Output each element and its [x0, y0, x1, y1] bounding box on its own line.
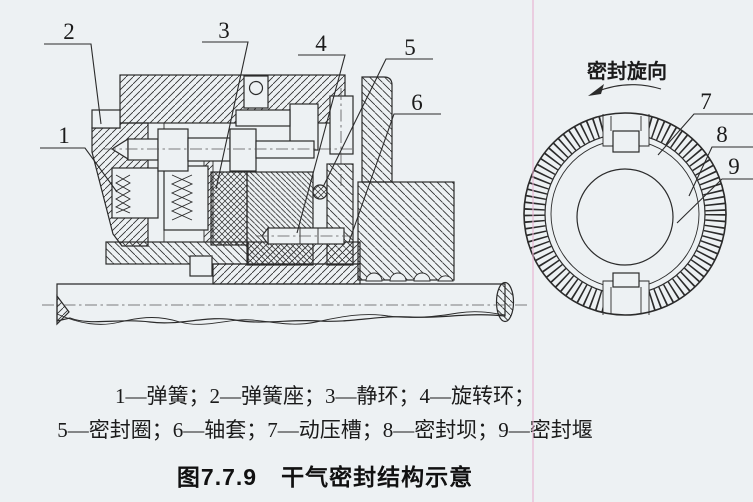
seal-face-view: 密封旋向 7 8 9	[524, 59, 753, 316]
callout-number-1: 1	[58, 123, 70, 148]
callout-number-5: 5	[404, 35, 416, 60]
callout-number-2: 2	[63, 19, 75, 44]
callout-number-9: 9	[728, 154, 740, 179]
static-ring	[211, 172, 247, 245]
shaft-body	[57, 284, 505, 323]
pin-rod-1	[128, 139, 158, 160]
figure-caption: 图7.7.9 干气密封结构示意	[0, 458, 650, 492]
sleeve-right-block	[358, 182, 454, 280]
pin-rod-3	[256, 141, 314, 158]
rotation-direction-label: 密封旋向	[587, 59, 667, 83]
callout-number-3: 3	[218, 18, 230, 43]
scan-artifact-line	[532, 0, 534, 502]
spring-pocket-mid	[164, 166, 208, 230]
anti-rotation-slot	[330, 96, 353, 154]
rotation-arrow-head	[588, 84, 604, 96]
pin-block-1	[158, 129, 188, 171]
lower-drive-pin	[256, 228, 352, 244]
callout-2: 2	[44, 19, 101, 124]
pin-rod-2	[188, 138, 230, 161]
rotation-direction: 密封旋向	[587, 59, 667, 96]
figure-page: 1 2 3 4 5 6	[0, 0, 753, 502]
keyway-slot-top	[603, 113, 649, 152]
callout-number-8: 8	[716, 122, 728, 147]
sleeve-under-ring	[248, 242, 360, 264]
holder-plate	[236, 110, 290, 126]
rotation-arrow-arc	[596, 85, 661, 92]
lock-key	[190, 256, 212, 276]
slot-top-tab	[613, 131, 639, 152]
callout-number-4: 4	[315, 31, 327, 56]
o-ring	[313, 185, 327, 199]
cross-section-view: 1 2 3 4 5 6	[40, 18, 528, 324]
sleeve-foot	[213, 264, 360, 284]
legend-line-1: 1—弹簧；2—弹簧座；3—静环；4—旋转环；	[0, 379, 650, 413]
set-screw-head	[250, 82, 263, 95]
spring-seat-step	[92, 110, 120, 128]
pin-block-2	[230, 129, 256, 171]
callout-number-6: 6	[411, 90, 423, 115]
callout-number-7: 7	[700, 89, 712, 114]
slot-bottom-tab	[613, 273, 639, 287]
shaft-right-cap	[497, 283, 514, 322]
figure-legend: 1—弹簧；2—弹簧座；3—静环；4—旋转环； 5—密封圈；6—轴套；7—动压槽；…	[0, 379, 650, 447]
seal-bore	[577, 169, 673, 265]
legend-line-2: 5—密封圈；6—轴套；7—动压槽；8—密封坝；9—密封堰	[0, 413, 650, 447]
shaft	[42, 283, 528, 325]
sleeve-column	[362, 77, 392, 182]
